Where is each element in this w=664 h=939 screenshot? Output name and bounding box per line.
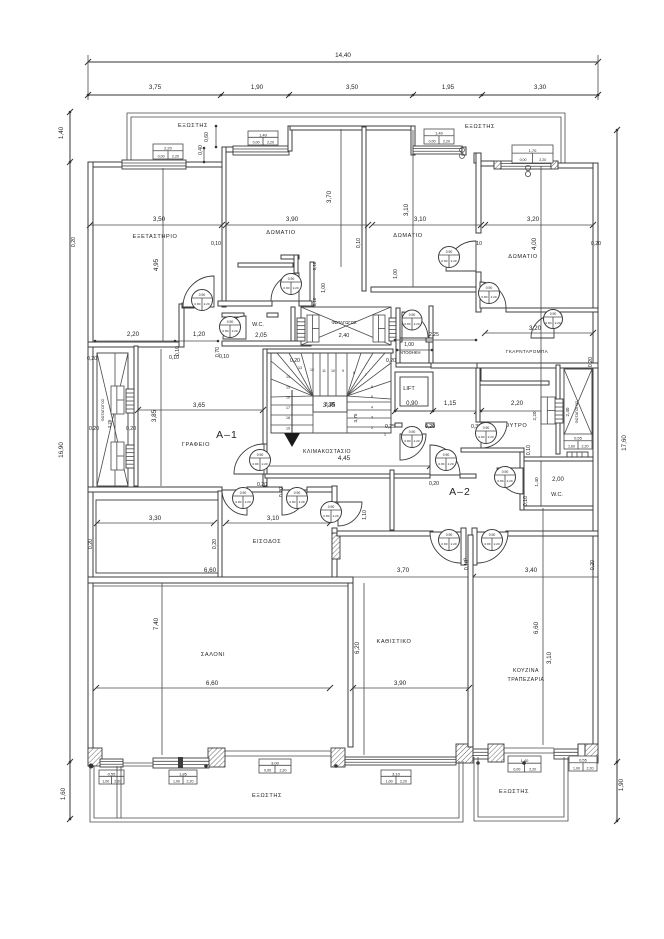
svg-text:ΕΞΩΣΤΗΣ: ΕΞΩΣΤΗΣ xyxy=(178,123,208,129)
svg-text:0,55: 0,55 xyxy=(579,758,588,763)
svg-text:1,00: 1,00 xyxy=(573,767,580,771)
svg-text:ΦΩΤΑΓΩΓΟΣ: ΦΩΤΑΓΩΓΟΣ xyxy=(331,320,357,325)
svg-text:0.80: 0.80 xyxy=(404,322,410,326)
svg-text:ΕΞΩΣΤΗΣ: ΕΞΩΣΤΗΣ xyxy=(499,789,529,795)
svg-text:2.20: 2.20 xyxy=(204,302,210,306)
svg-text:1,60: 1,60 xyxy=(568,445,575,449)
svg-text:3,10: 3,10 xyxy=(546,651,553,664)
svg-text:2,20: 2,20 xyxy=(539,158,546,162)
svg-text:6,60: 6,60 xyxy=(533,621,540,634)
svg-text:ΦΩΤΑΓΩΓΟΣ: ΦΩΤΑΓΩΓΟΣ xyxy=(101,398,105,421)
svg-text:0,10: 0,10 xyxy=(312,261,317,270)
svg-text:W.C.: W.C. xyxy=(252,322,264,328)
svg-text:ΤΡΑΠΕΖΑΡΙΑ: ΤΡΑΠΕΖΑΡΙΑ xyxy=(508,677,545,683)
svg-text:0,00: 0,00 xyxy=(264,769,271,773)
svg-text:2,20: 2,20 xyxy=(587,767,594,771)
svg-text:3,10: 3,10 xyxy=(267,515,280,522)
svg-text:2: 2 xyxy=(371,426,373,430)
svg-text:19: 19 xyxy=(286,427,290,431)
svg-text:2.20: 2.20 xyxy=(507,479,513,483)
svg-text:0.90: 0.90 xyxy=(199,293,206,297)
svg-text:3: 3 xyxy=(371,416,373,420)
svg-text:2,20: 2,20 xyxy=(187,780,194,784)
svg-text:0.80: 0.80 xyxy=(497,479,503,483)
svg-text:0,20: 0,20 xyxy=(89,426,99,432)
svg-text:0.80: 0.80 xyxy=(283,286,289,290)
svg-text:0.90: 0.90 xyxy=(288,277,295,281)
svg-text:A–2: A–2 xyxy=(449,486,471,498)
svg-text:3,70: 3,70 xyxy=(326,190,333,203)
svg-text:6,60: 6,60 xyxy=(204,567,217,574)
svg-text:2.20: 2.20 xyxy=(293,286,299,290)
svg-text:0.90: 0.90 xyxy=(328,505,335,509)
svg-text:3,90: 3,90 xyxy=(286,216,299,223)
svg-text:1,00: 1,00 xyxy=(102,780,109,784)
svg-text:0,20: 0,20 xyxy=(591,241,601,247)
svg-text:2.20: 2.20 xyxy=(451,542,457,546)
svg-text:0.90: 0.90 xyxy=(227,320,234,324)
svg-text:1,60: 1,60 xyxy=(60,787,67,800)
svg-text:0.90: 0.90 xyxy=(294,491,301,495)
svg-text:0.80: 0.80 xyxy=(404,439,410,443)
svg-text:0.90: 0.90 xyxy=(240,491,247,495)
svg-text:2,20: 2,20 xyxy=(114,780,121,784)
svg-text:2,40: 2,40 xyxy=(565,407,570,416)
svg-text:1,40: 1,40 xyxy=(58,126,65,139)
svg-text:ΚΑΘΙΣΤΙΚΟ: ΚΑΘΙΣΤΙΚΟ xyxy=(377,639,412,645)
svg-text:0.80: 0.80 xyxy=(323,514,329,518)
svg-text:3,30: 3,30 xyxy=(149,515,162,522)
svg-text:3,90: 3,90 xyxy=(394,680,407,687)
svg-text:ΣΑΛΟΝΙ: ΣΑΛΟΝΙ xyxy=(201,652,225,658)
svg-text:1,00: 1,00 xyxy=(321,283,327,293)
svg-text:0.90: 0.90 xyxy=(502,470,509,474)
svg-text:1,90: 1,90 xyxy=(618,778,625,791)
svg-text:0,00: 0,00 xyxy=(429,140,436,144)
svg-text:0,40: 0,40 xyxy=(198,145,204,155)
svg-text:ΔΩΜΑΤΙΟ: ΔΩΜΑΤΙΟ xyxy=(266,230,295,236)
svg-text:0,00: 0,00 xyxy=(520,158,527,162)
svg-text:3,25: 3,25 xyxy=(107,419,112,428)
svg-text:2,20: 2,20 xyxy=(532,411,537,420)
svg-text:8: 8 xyxy=(353,371,355,375)
svg-text:3,10: 3,10 xyxy=(403,203,410,216)
svg-text:7: 7 xyxy=(365,373,367,377)
svg-text:2,25: 2,25 xyxy=(429,332,439,338)
svg-text:0,20: 0,20 xyxy=(88,539,94,549)
svg-text:4,95: 4,95 xyxy=(153,258,160,271)
svg-text:3,20: 3,20 xyxy=(527,216,540,223)
svg-text:0,20: 0,20 xyxy=(425,424,435,430)
svg-text:1,40: 1,40 xyxy=(259,132,268,137)
svg-text:1,95: 1,95 xyxy=(442,84,455,91)
svg-text:3,30: 3,30 xyxy=(534,84,547,91)
svg-text:18: 18 xyxy=(286,416,290,420)
svg-text:0,10: 0,10 xyxy=(464,560,470,570)
svg-text:3,75: 3,75 xyxy=(353,413,358,422)
svg-text:2.20: 2.20 xyxy=(245,500,251,504)
svg-text:0.80: 0.80 xyxy=(441,542,447,546)
svg-text:3,35: 3,35 xyxy=(323,402,336,409)
svg-text:3,20: 3,20 xyxy=(529,325,542,332)
svg-text:17: 17 xyxy=(286,406,290,410)
svg-text:15: 15 xyxy=(286,385,290,389)
svg-text:0.90: 0.90 xyxy=(446,250,453,254)
svg-text:1,00: 1,00 xyxy=(386,780,393,784)
svg-text:3,50: 3,50 xyxy=(153,216,166,223)
svg-text:16: 16 xyxy=(286,396,290,400)
svg-text:1,40: 1,40 xyxy=(435,131,444,136)
svg-text:16,90: 16,90 xyxy=(58,442,65,458)
svg-text:0.90: 0.90 xyxy=(483,426,490,430)
svg-text:0,20: 0,20 xyxy=(290,358,300,364)
svg-text:0.90: 0.90 xyxy=(550,312,557,316)
svg-text:2,05: 2,05 xyxy=(255,333,267,339)
svg-text:2.20: 2.20 xyxy=(414,322,420,326)
svg-text:1,00: 1,00 xyxy=(393,269,399,279)
svg-text:0.80: 0.80 xyxy=(222,329,228,333)
svg-text:LIFT: LIFT xyxy=(403,386,415,392)
svg-text:A–1: A–1 xyxy=(216,429,238,441)
svg-text:0,55: 0,55 xyxy=(574,436,583,441)
svg-text:0.90: 0.90 xyxy=(486,286,493,290)
svg-text:2,20: 2,20 xyxy=(267,141,274,145)
svg-text:0.90: 0.90 xyxy=(257,453,264,457)
svg-text:0,00: 0,00 xyxy=(158,155,165,159)
svg-text:2,20: 2,20 xyxy=(400,780,407,784)
svg-text:0.90: 0.90 xyxy=(409,313,416,317)
svg-text:1,10: 1,10 xyxy=(362,510,368,520)
svg-text:2.20: 2.20 xyxy=(451,259,457,263)
svg-text:3,50: 3,50 xyxy=(346,84,359,91)
svg-text:0.80: 0.80 xyxy=(252,462,258,466)
svg-text:2.20: 2.20 xyxy=(262,462,268,466)
svg-text:3,85: 3,85 xyxy=(151,409,158,422)
svg-text:6,60: 6,60 xyxy=(206,680,219,687)
svg-text:2,40: 2,40 xyxy=(339,333,350,339)
svg-text:0.80: 0.80 xyxy=(481,295,487,299)
svg-text:5: 5 xyxy=(371,395,373,399)
svg-text:ΦΩΤΑΓΩΓΟΣ: ΦΩΤΑΓΩΓΟΣ xyxy=(575,400,579,423)
svg-text:0,20: 0,20 xyxy=(257,482,267,488)
svg-text:0,20: 0,20 xyxy=(386,358,396,364)
svg-text:0.80: 0.80 xyxy=(235,500,241,504)
svg-text:2.20: 2.20 xyxy=(494,542,500,546)
svg-text:0,20: 0,20 xyxy=(126,426,136,432)
svg-text:2.20: 2.20 xyxy=(232,329,238,333)
svg-text:0,20: 0,20 xyxy=(212,539,218,549)
svg-text:0,10: 0,10 xyxy=(219,354,229,360)
svg-text:6,20: 6,20 xyxy=(354,641,361,654)
svg-text:12: 12 xyxy=(310,368,314,372)
svg-text:0.80: 0.80 xyxy=(484,542,490,546)
svg-text:0.90: 0.90 xyxy=(443,453,450,457)
svg-text:14: 14 xyxy=(286,375,290,379)
svg-text:4,45: 4,45 xyxy=(338,455,351,462)
svg-text:0,10: 0,10 xyxy=(526,445,532,455)
svg-text:ΕΙΣΟΔΟΣ: ΕΙΣΟΔΟΣ xyxy=(253,539,282,545)
svg-text:3,70: 3,70 xyxy=(397,567,410,574)
svg-text:ΕΞΩΣΤΗΣ: ΕΞΩΣΤΗΣ xyxy=(252,793,282,799)
svg-text:0,55: 0,55 xyxy=(108,771,117,776)
svg-text:2,20: 2,20 xyxy=(280,769,287,773)
svg-text:1,00: 1,00 xyxy=(173,780,180,784)
svg-text:2.20: 2.20 xyxy=(555,321,561,325)
svg-text:2.20: 2.20 xyxy=(414,439,420,443)
svg-text:6: 6 xyxy=(371,385,373,389)
svg-text:2,20: 2,20 xyxy=(127,331,140,338)
svg-text:7,40: 7,40 xyxy=(153,617,160,630)
svg-text:1,70: 1,70 xyxy=(529,148,538,153)
svg-text:3,75: 3,75 xyxy=(149,84,162,91)
svg-text:2,20: 2,20 xyxy=(172,155,179,159)
svg-text:2.20: 2.20 xyxy=(333,514,339,518)
svg-text:0,20: 0,20 xyxy=(590,560,596,570)
svg-text:0.90: 0.90 xyxy=(446,533,453,537)
svg-text:1,00: 1,00 xyxy=(404,342,414,348)
svg-text:0,00: 0,00 xyxy=(513,767,520,771)
svg-text:2,20: 2,20 xyxy=(582,445,589,449)
svg-text:3,00: 3,00 xyxy=(271,760,280,765)
svg-text:2.20: 2.20 xyxy=(448,462,454,466)
svg-text:2.20: 2.20 xyxy=(491,295,497,299)
svg-text:0,90: 0,90 xyxy=(406,401,418,407)
svg-text:0,20: 0,20 xyxy=(588,357,594,367)
svg-text:2,20: 2,20 xyxy=(511,400,524,407)
svg-text:4,00: 4,00 xyxy=(531,237,538,250)
svg-text:0,00: 0,00 xyxy=(253,141,260,145)
svg-text:ΓΚΑΡΝΤΑΡΟΜΠΑ: ΓΚΑΡΝΤΑΡΟΜΠΑ xyxy=(506,349,549,354)
svg-text:1,90: 1,90 xyxy=(251,84,264,91)
svg-text:0,10: 0,10 xyxy=(211,241,221,247)
svg-text:3,40: 3,40 xyxy=(525,567,538,574)
svg-text:9: 9 xyxy=(342,369,344,373)
svg-text:2,20: 2,20 xyxy=(443,140,450,144)
svg-text:2.20: 2.20 xyxy=(488,435,494,439)
svg-text:ΑΠΟΘΗΚΗ: ΑΠΟΘΗΚΗ xyxy=(399,350,420,355)
svg-text:10: 10 xyxy=(331,369,335,373)
svg-text:0.80: 0.80 xyxy=(438,462,444,466)
svg-text:1,40: 1,40 xyxy=(534,477,540,487)
svg-text:0.90: 0.90 xyxy=(409,430,416,434)
svg-text:0,10: 0,10 xyxy=(312,297,317,306)
svg-text:14,40: 14,40 xyxy=(335,52,351,59)
svg-text:13: 13 xyxy=(298,366,302,370)
svg-text:0,20: 0,20 xyxy=(87,356,97,362)
svg-text:0,10: 0,10 xyxy=(356,238,362,248)
svg-text:1,15: 1,15 xyxy=(444,400,457,407)
svg-text:0,10: 0,10 xyxy=(523,496,529,506)
svg-text:0.80: 0.80 xyxy=(289,500,295,504)
svg-text:ΕΞΕΤΑΣΤΗΡΙΟ: ΕΞΕΤΑΣΤΗΡΙΟ xyxy=(133,234,178,240)
svg-text:4: 4 xyxy=(371,405,373,409)
svg-text:3,65: 3,65 xyxy=(193,402,206,409)
svg-text:0.80: 0.80 xyxy=(441,259,447,263)
svg-text:3,10: 3,10 xyxy=(392,771,401,776)
svg-text:2,20: 2,20 xyxy=(529,767,536,771)
svg-text:1,20: 1,20 xyxy=(193,331,206,338)
svg-text:2,00: 2,00 xyxy=(552,477,564,483)
svg-text:0.80: 0.80 xyxy=(194,302,200,306)
svg-text:0,60: 0,60 xyxy=(204,132,210,142)
svg-text:0.80: 0.80 xyxy=(478,435,484,439)
svg-text:ΕΞΩΣΤΗΣ: ΕΞΩΣΤΗΣ xyxy=(465,124,495,130)
svg-text:17,60: 17,60 xyxy=(621,435,628,451)
svg-text:1,85: 1,85 xyxy=(179,771,188,776)
svg-text:2,20: 2,20 xyxy=(164,146,173,151)
svg-text:3,10: 3,10 xyxy=(414,216,427,223)
svg-text:ΚΟΥΖΙΝΑ: ΚΟΥΖΙΝΑ xyxy=(513,668,539,674)
svg-text:0.80: 0.80 xyxy=(545,321,551,325)
svg-text:1: 1 xyxy=(384,433,386,437)
svg-text:W.C.: W.C. xyxy=(551,492,563,498)
svg-text:ΔΩΜΑΤΙΟ: ΔΩΜΑΤΙΟ xyxy=(508,254,537,260)
svg-text:0,20: 0,20 xyxy=(429,481,439,487)
svg-text:2.20: 2.20 xyxy=(299,500,305,504)
svg-text:0,10: 0,10 xyxy=(175,346,181,356)
svg-text:0.90: 0.90 xyxy=(489,533,496,537)
svg-text:11: 11 xyxy=(322,369,326,373)
svg-text:ΓΡΑΦΕΙΟ: ΓΡΑΦΕΙΟ xyxy=(182,442,210,448)
svg-text:0,25: 0,25 xyxy=(385,424,395,430)
svg-text:0,20: 0,20 xyxy=(71,237,77,247)
svg-text:ΔΩΜΑΤΙΟ: ΔΩΜΑΤΙΟ xyxy=(393,233,422,239)
